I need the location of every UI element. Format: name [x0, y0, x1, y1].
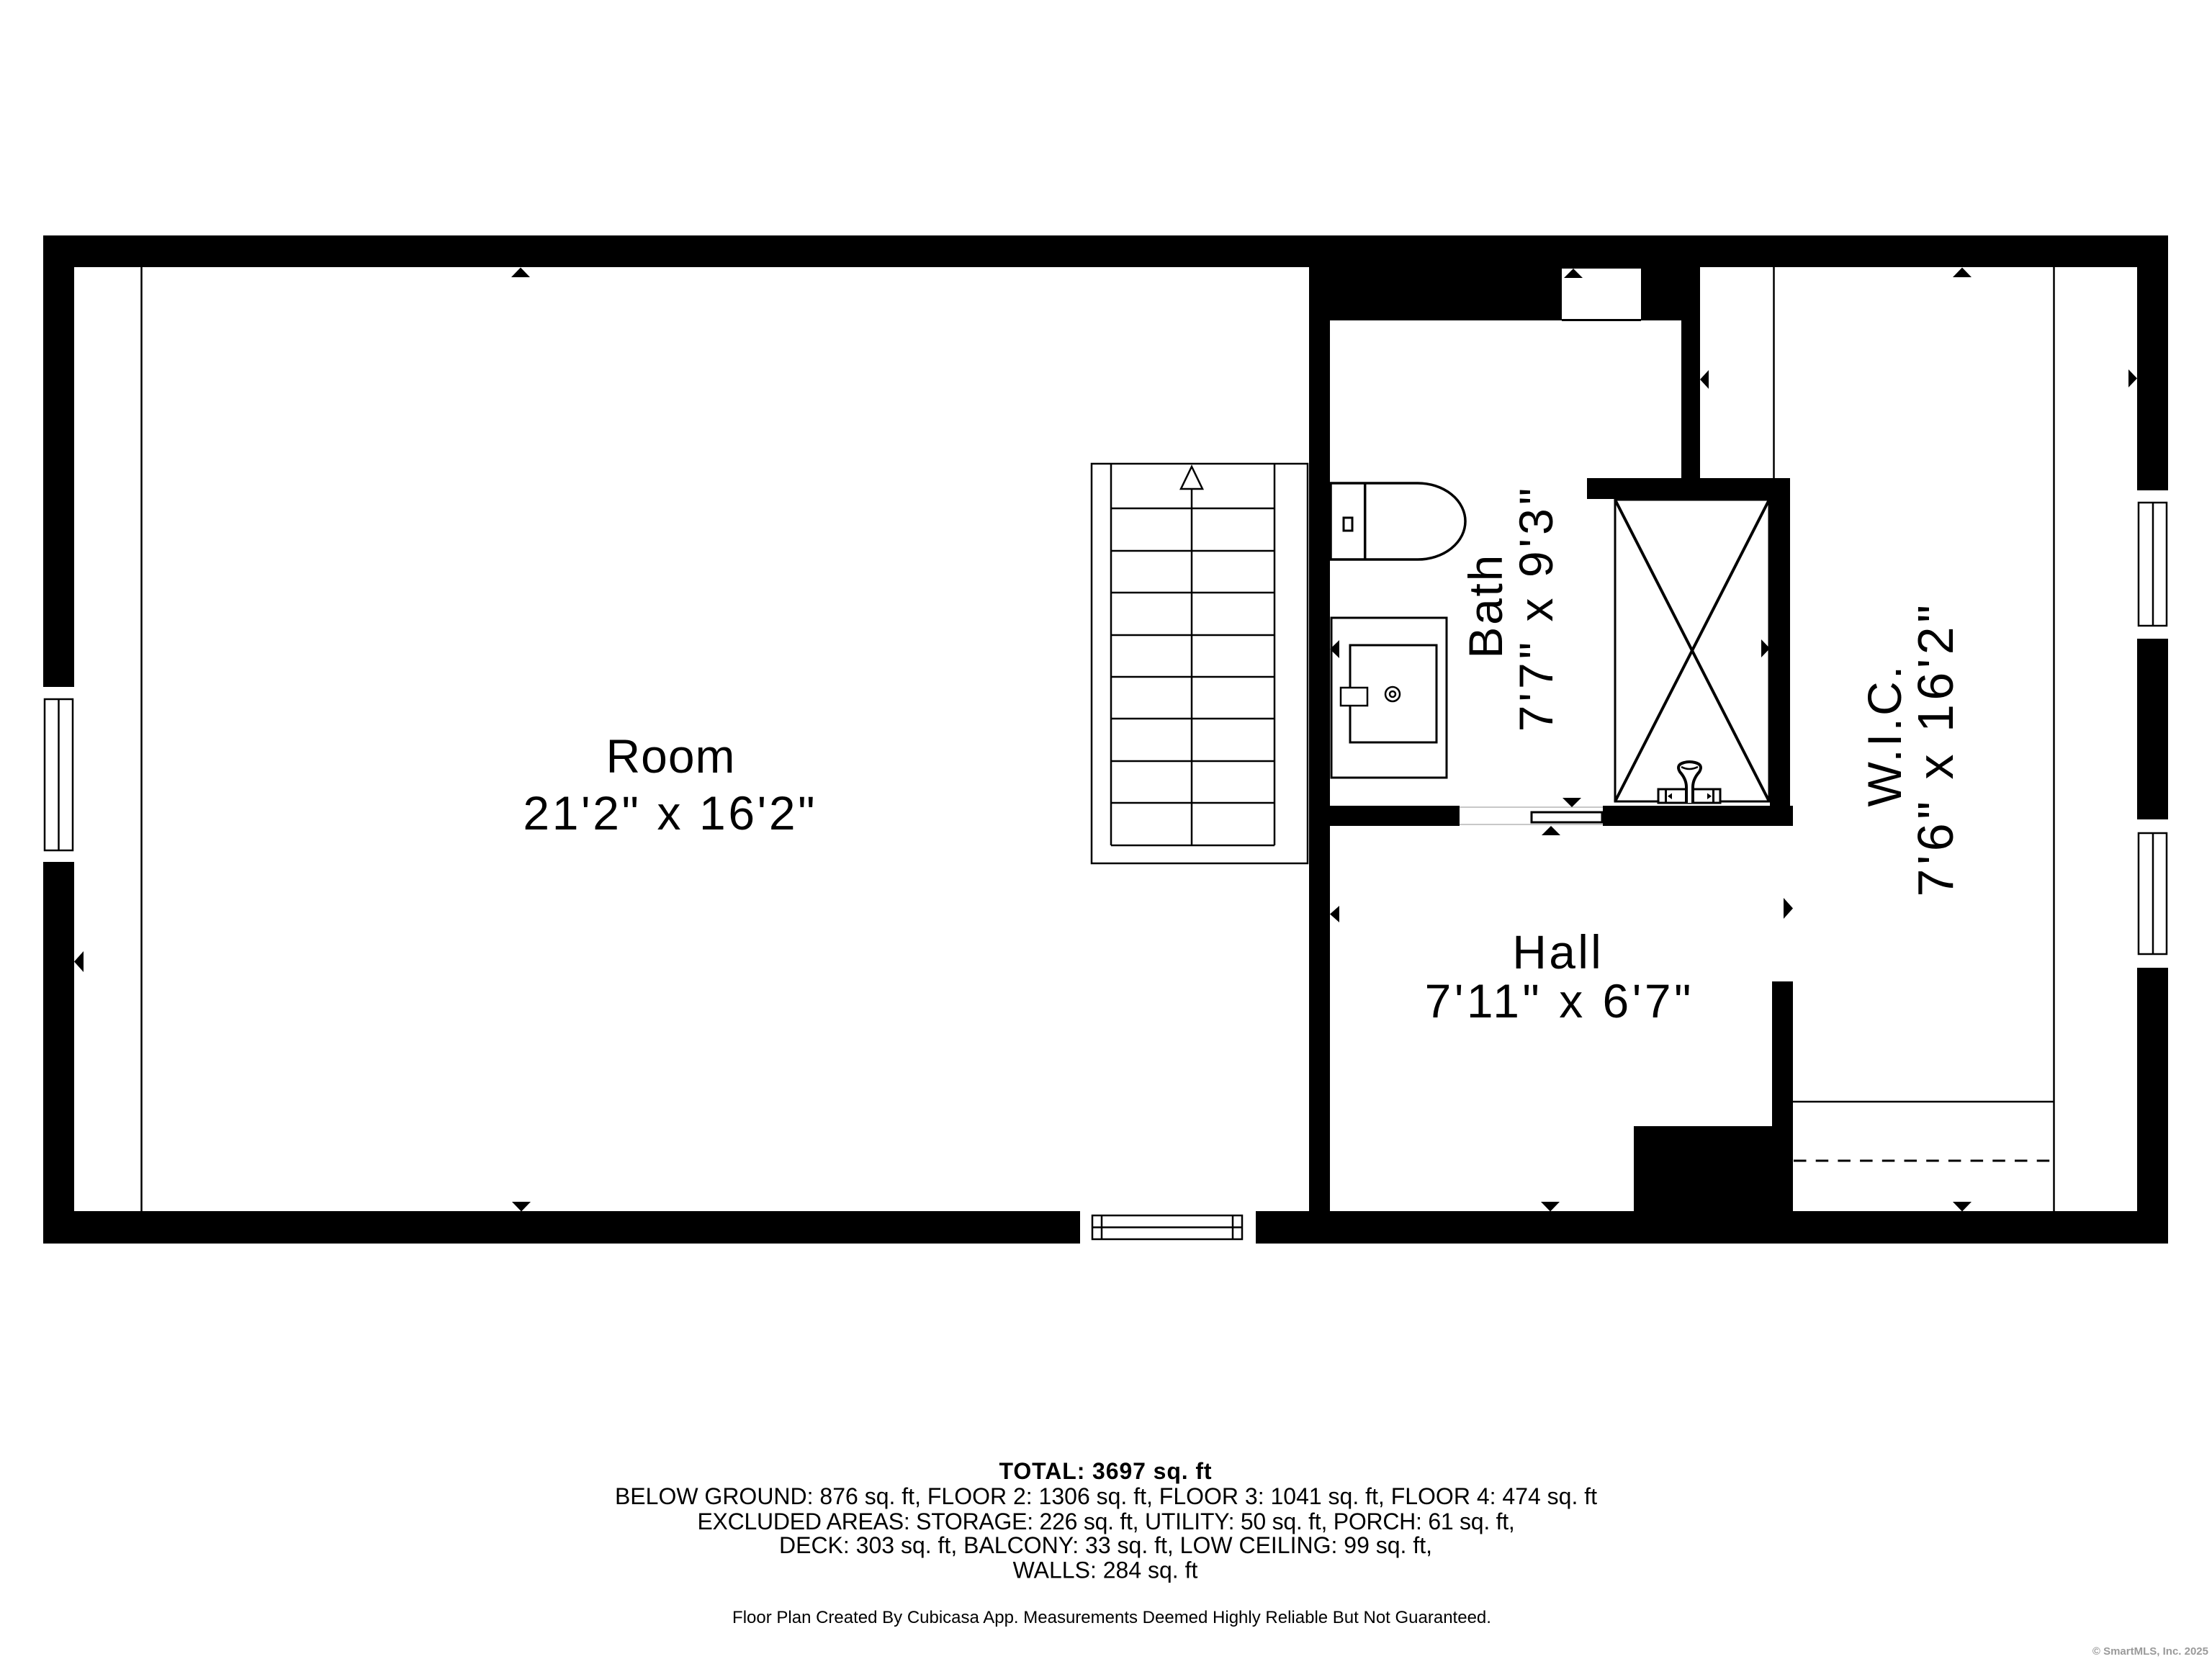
svg-text:W.I.C.: W.I.C.: [1858, 664, 1911, 807]
svg-text:DECK: 303 sq. ft, BALCONY: 33: DECK: 303 sq. ft, BALCONY: 33 sq. ft, LO…: [779, 1532, 1432, 1558]
svg-text:© SmartMLS, Inc. 2025: © SmartMLS, Inc. 2025: [2092, 1645, 2208, 1658]
svg-text:Bath: Bath: [1459, 553, 1512, 659]
svg-text:TOTAL: 3697 sq. ft: TOTAL: 3697 sq. ft: [999, 1458, 1213, 1484]
svg-text:BELOW GROUND: 876 sq. ft, FLOO: BELOW GROUND: 876 sq. ft, FLOOR 2: 1306 …: [615, 1483, 1597, 1509]
svg-text:21'2" x 16'2": 21'2" x 16'2": [523, 786, 817, 840]
svg-text:7'11" x 6'7": 7'11" x 6'7": [1425, 974, 1694, 1028]
svg-text:Room: Room: [606, 729, 735, 783]
svg-text:WALLS: 284 sq. ft: WALLS: 284 sq. ft: [1013, 1557, 1198, 1583]
svg-text:Floor Plan Created By Cubicasa: Floor Plan Created By Cubicasa App. Meas…: [732, 1608, 1491, 1627]
svg-text:7'6" x 16'2": 7'6" x 16'2": [1907, 601, 1964, 897]
svg-text:EXCLUDED AREAS: STORAGE: 226 s: EXCLUDED AREAS: STORAGE: 226 sq. ft, UTI…: [697, 1509, 1514, 1534]
svg-text:7'7" x 9'3": 7'7" x 9'3": [1509, 485, 1563, 732]
svg-text:Hall: Hall: [1512, 925, 1604, 979]
